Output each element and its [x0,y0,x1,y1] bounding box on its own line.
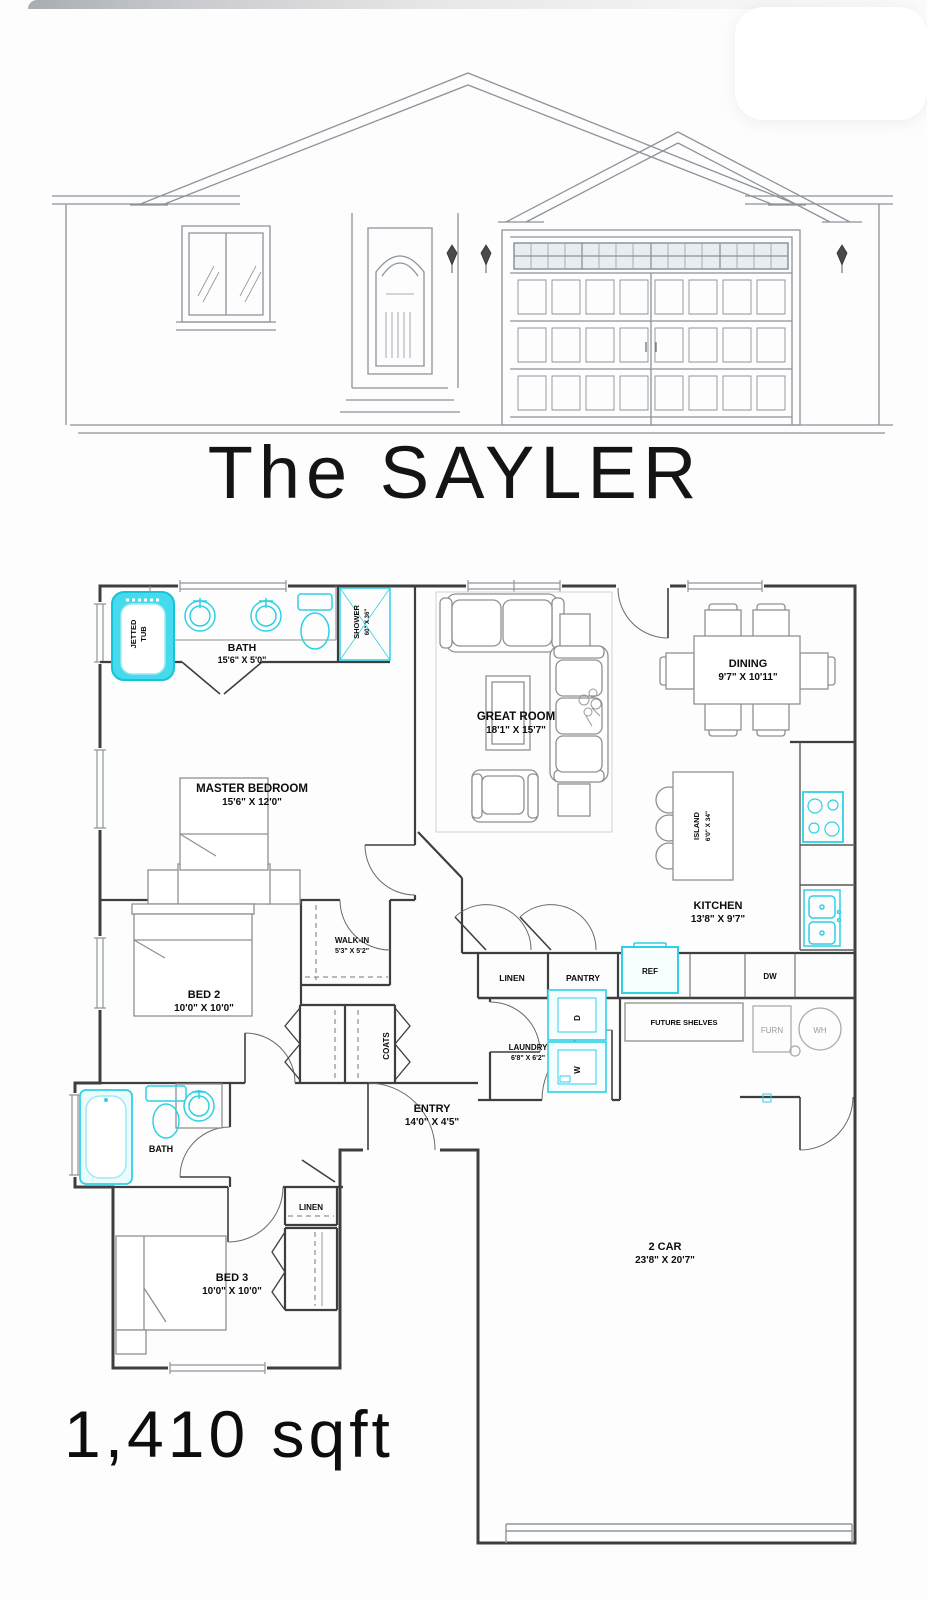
sofa [550,646,608,782]
island-label: ISLAND [692,811,701,840]
furn-label: FURN [761,1026,783,1035]
bath2-label: BATH [149,1144,173,1154]
shower-label: SHOWER [352,605,361,639]
dining-set [660,604,835,736]
dryer-label: D [573,1015,582,1021]
coats-label: COATS [382,1032,391,1060]
future-shelves-label: FUTURE SHELVES [651,1018,718,1027]
pantry-label: PANTRY [566,973,600,983]
laundry-label: LAUNDRY [509,1043,548,1052]
loveseat [440,594,564,652]
garage-label: 2 CAR [648,1241,681,1253]
floorplan-drawing: BATH 15'6" X 5'0" SHOWER 60" X 36" JETTE… [68,579,855,1543]
wh-label: WH [813,1026,827,1035]
bed2-label: BED 2 [188,989,220,1001]
dw-label: DW [763,972,777,981]
entry-label: ENTRY [414,1103,452,1115]
master-bedroom-dims: 15'6" X 12'0" [222,797,282,808]
washer-label: W [573,1066,582,1074]
laundry-dims: 6'8" X 6'2" [511,1055,545,1062]
master-bath-dims: 15'6" X 5'0" [218,655,267,665]
garage-dims: 23'8" X 20'7" [635,1255,695,1266]
elevation-drawing [52,73,893,433]
elevation-garage-door [502,230,800,425]
entry-dims: 14'0" X 4'5" [405,1117,460,1128]
master-bedroom-label: MASTER BEDROOM [196,783,308,795]
kitchen-label: KITCHEN [694,900,743,912]
elevation-window [176,226,276,330]
elevation-front-door [340,228,460,412]
flyer-page: The SAYLER 1,410 sqft [0,0,927,1600]
armchair [472,770,538,822]
ref-label: REF [642,967,658,976]
bath2-toilet [146,1086,186,1138]
bed2-dims: 10'0" X 10'0" [174,1003,234,1014]
great-room-dims: 18'1" X 15'7" [486,725,546,736]
linen-kitchen-label: LINEN [499,973,525,983]
garage-door-lines [506,1524,852,1543]
linen-hall-label: LINEN [299,1203,323,1212]
great-room-label: GREAT ROOM [477,711,555,723]
walk-in-label: WALK-IN [335,936,369,945]
jetted-tub-label2: TUB [139,626,148,642]
jetted-tub-label1: JETTED [129,619,138,648]
kitchen-dims: 13'8" X 9'7" [691,914,746,925]
island-dims: 6'0" X 34" [705,811,712,841]
shower-dims: 60" X 36" [365,609,371,636]
dining-label: DINING [729,658,768,670]
washer-dryer [548,990,606,1092]
kitchen-sink [804,890,841,946]
bath2-sink [184,1090,214,1121]
plan-drawing: BATH 15'6" X 5'0" SHOWER 60" X 36" JETTE… [0,0,927,1600]
master-sinks [185,598,281,631]
bed3-dims: 10'0" X 10'0" [202,1286,262,1297]
bath2-tub [80,1090,132,1184]
walk-in-dims: 5'3" X 5'2" [335,948,369,955]
dining-dims: 9'7" X 10'11" [718,672,778,683]
bed3-label: BED 3 [216,1272,248,1284]
range [803,792,843,842]
master-toilet [298,594,332,649]
master-bath-label: BATH [228,642,256,654]
end-table [558,784,590,816]
end-table [560,614,590,648]
